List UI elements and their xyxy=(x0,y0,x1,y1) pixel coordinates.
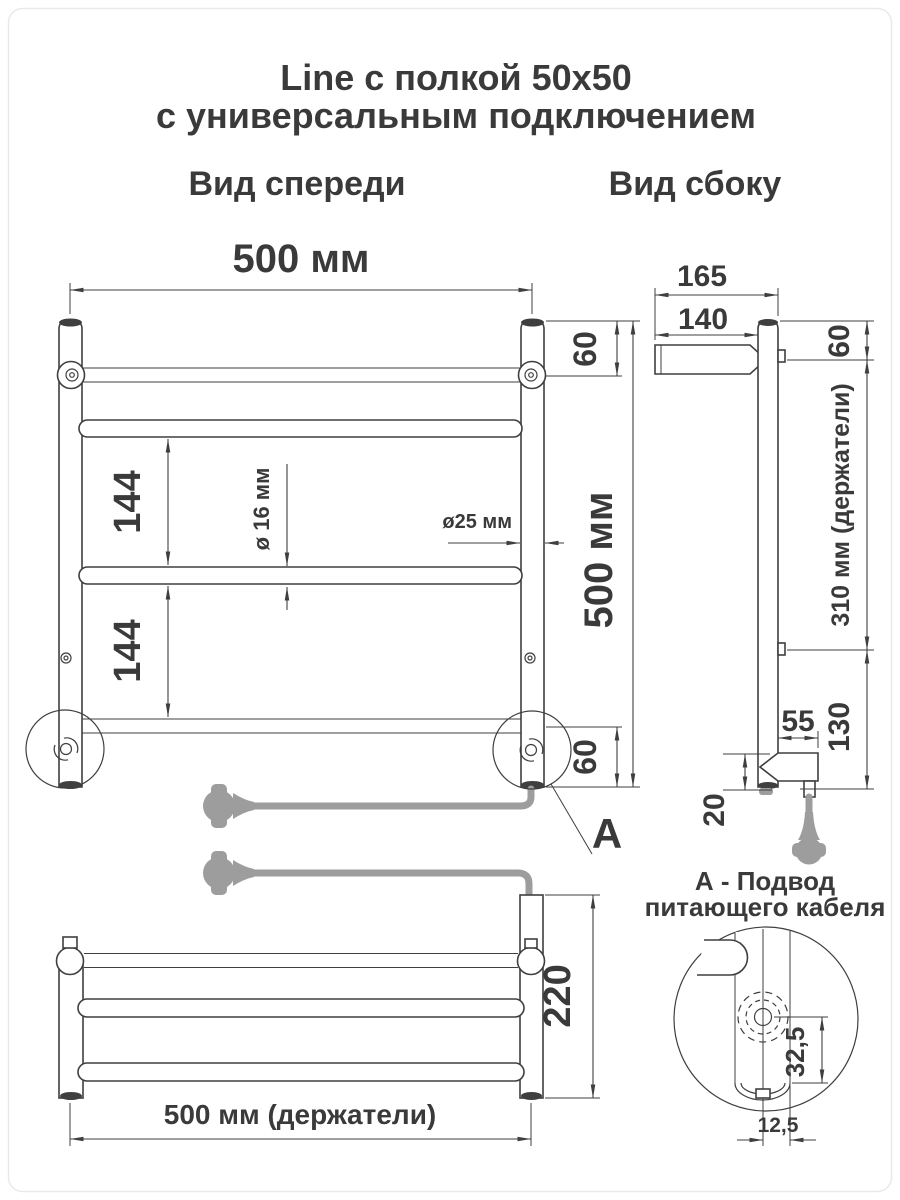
front-top-offset-label: 60 xyxy=(567,331,603,367)
front-right-post-cap xyxy=(521,319,544,327)
plan-holders-width-label: 500 мм (держатели) xyxy=(164,1099,436,1130)
front-view: 500 мм 60 500 мм 60 144 144 xyxy=(26,237,640,895)
plan-shelf-bar-1 xyxy=(78,999,524,1017)
front-top-offset-dim: 60 xyxy=(546,321,640,376)
plan-left-post xyxy=(57,948,84,975)
side-top-offset-label: 60 xyxy=(823,324,856,357)
front-gap1-dim: 144 xyxy=(107,439,168,565)
plan-shelf-bar-2 xyxy=(78,1063,524,1081)
plan-right-post-cap xyxy=(525,939,537,948)
detail-a: А - Подвод питающего кабеля xyxy=(645,866,886,1146)
front-height-label: 500 мм xyxy=(577,491,621,628)
title-block: Line с полкой 50x50 с универсальным подк… xyxy=(156,57,781,203)
front-bottom-rail xyxy=(82,719,521,733)
front-gap2-label: 144 xyxy=(107,619,149,682)
front-bottom-offset-label: 60 xyxy=(567,739,603,775)
front-post-dia-label: ø25 мм xyxy=(442,511,512,533)
technical-drawing: Line с полкой 50x50 с универсальным подк… xyxy=(0,0,900,1200)
front-right-post xyxy=(521,321,544,787)
side-view-label: Вид сбоку xyxy=(609,165,782,203)
front-tube-dia-label: ø 16 мм xyxy=(249,468,274,551)
side-clip-bottom xyxy=(778,643,785,655)
plan-view: 220 500 мм (держатели) xyxy=(57,895,601,1146)
side-holder-depth-label: 55 xyxy=(781,705,814,738)
plan-depth-label: 220 xyxy=(537,964,579,1027)
front-left-bracket xyxy=(58,362,85,389)
detail-a-title-line2: питающего кабеля xyxy=(645,892,886,922)
side-holders-span-dim: 310 мм (держатели) xyxy=(787,360,874,650)
front-left-post-cap xyxy=(59,319,82,327)
front-gap1-label: 144 xyxy=(107,470,149,533)
power-plug-icon-1 xyxy=(203,784,254,828)
side-clearance-label: 20 xyxy=(698,793,731,826)
plan-right-arm-end xyxy=(521,1092,542,1100)
front-top-rail xyxy=(82,368,521,382)
front-width-label: 500 мм xyxy=(232,237,369,281)
page-title-line1: Line с полкой 50x50 xyxy=(280,57,632,98)
plan-depth-dim: 220 xyxy=(537,895,600,1098)
front-right-bracket xyxy=(519,362,546,389)
side-post-cap xyxy=(758,319,778,326)
detail-gland-offset-label: 32,5 xyxy=(780,1027,810,1078)
power-cable-2 xyxy=(203,851,529,895)
plan-holders-width-dim: 500 мм (держатели) xyxy=(70,1099,531,1146)
side-top-offset-dim: 60 xyxy=(780,321,874,360)
detail-gland-offset-dim: 32,5 xyxy=(774,1017,828,1083)
front-width-dim: 500 мм xyxy=(70,237,532,314)
detail-a-marker: А xyxy=(592,810,622,857)
plan-left-arm-end xyxy=(60,1092,82,1100)
front-rung-1 xyxy=(79,420,522,437)
plan-left-post-cap xyxy=(63,937,77,948)
detail-a-leader: А xyxy=(551,784,622,857)
detail-rail-end xyxy=(697,940,748,975)
page-title-line2: с универсальным подключением xyxy=(156,95,756,136)
side-post xyxy=(758,321,778,787)
detail-radius-offset-label: 12,5 xyxy=(758,1114,799,1137)
front-bottom-offset-dim: 60 xyxy=(546,727,622,787)
side-view: 165 140 60 310 мм (держатели) 130 xyxy=(655,260,874,865)
front-rung-2 xyxy=(79,567,522,584)
detail-radius-offset-dim: 12,5 xyxy=(737,1086,816,1146)
front-gap2-dim: 144 xyxy=(107,586,168,717)
front-view-label: Вид спереди xyxy=(189,165,406,203)
side-holder-depth-dim: 55 xyxy=(778,705,818,748)
side-shelf-depth-dim: 140 xyxy=(655,303,758,336)
power-plug-icon-2 xyxy=(203,851,254,895)
side-total-depth-label: 165 xyxy=(677,260,727,293)
side-power-plug-icon xyxy=(792,797,826,865)
power-cable-1 xyxy=(203,784,531,828)
side-post-foot xyxy=(758,782,778,789)
side-clip-top xyxy=(778,350,785,362)
side-shelf-arm xyxy=(655,345,766,374)
front-tube-dia-dim: ø 16 мм xyxy=(249,464,287,610)
drawing-page: Line с полкой 50x50 с универсальным подк… xyxy=(0,0,900,1200)
front-height-dim: 500 мм xyxy=(546,321,640,787)
side-bottom-span-label: 130 xyxy=(823,702,856,752)
front-left-post xyxy=(59,321,82,787)
front-post-dia-dim: ø25 мм xyxy=(442,511,564,543)
side-holders-span-label: 310 мм (держатели) xyxy=(827,383,855,626)
side-shelf-depth-label: 140 xyxy=(678,303,728,336)
side-foot-gland xyxy=(759,788,773,795)
